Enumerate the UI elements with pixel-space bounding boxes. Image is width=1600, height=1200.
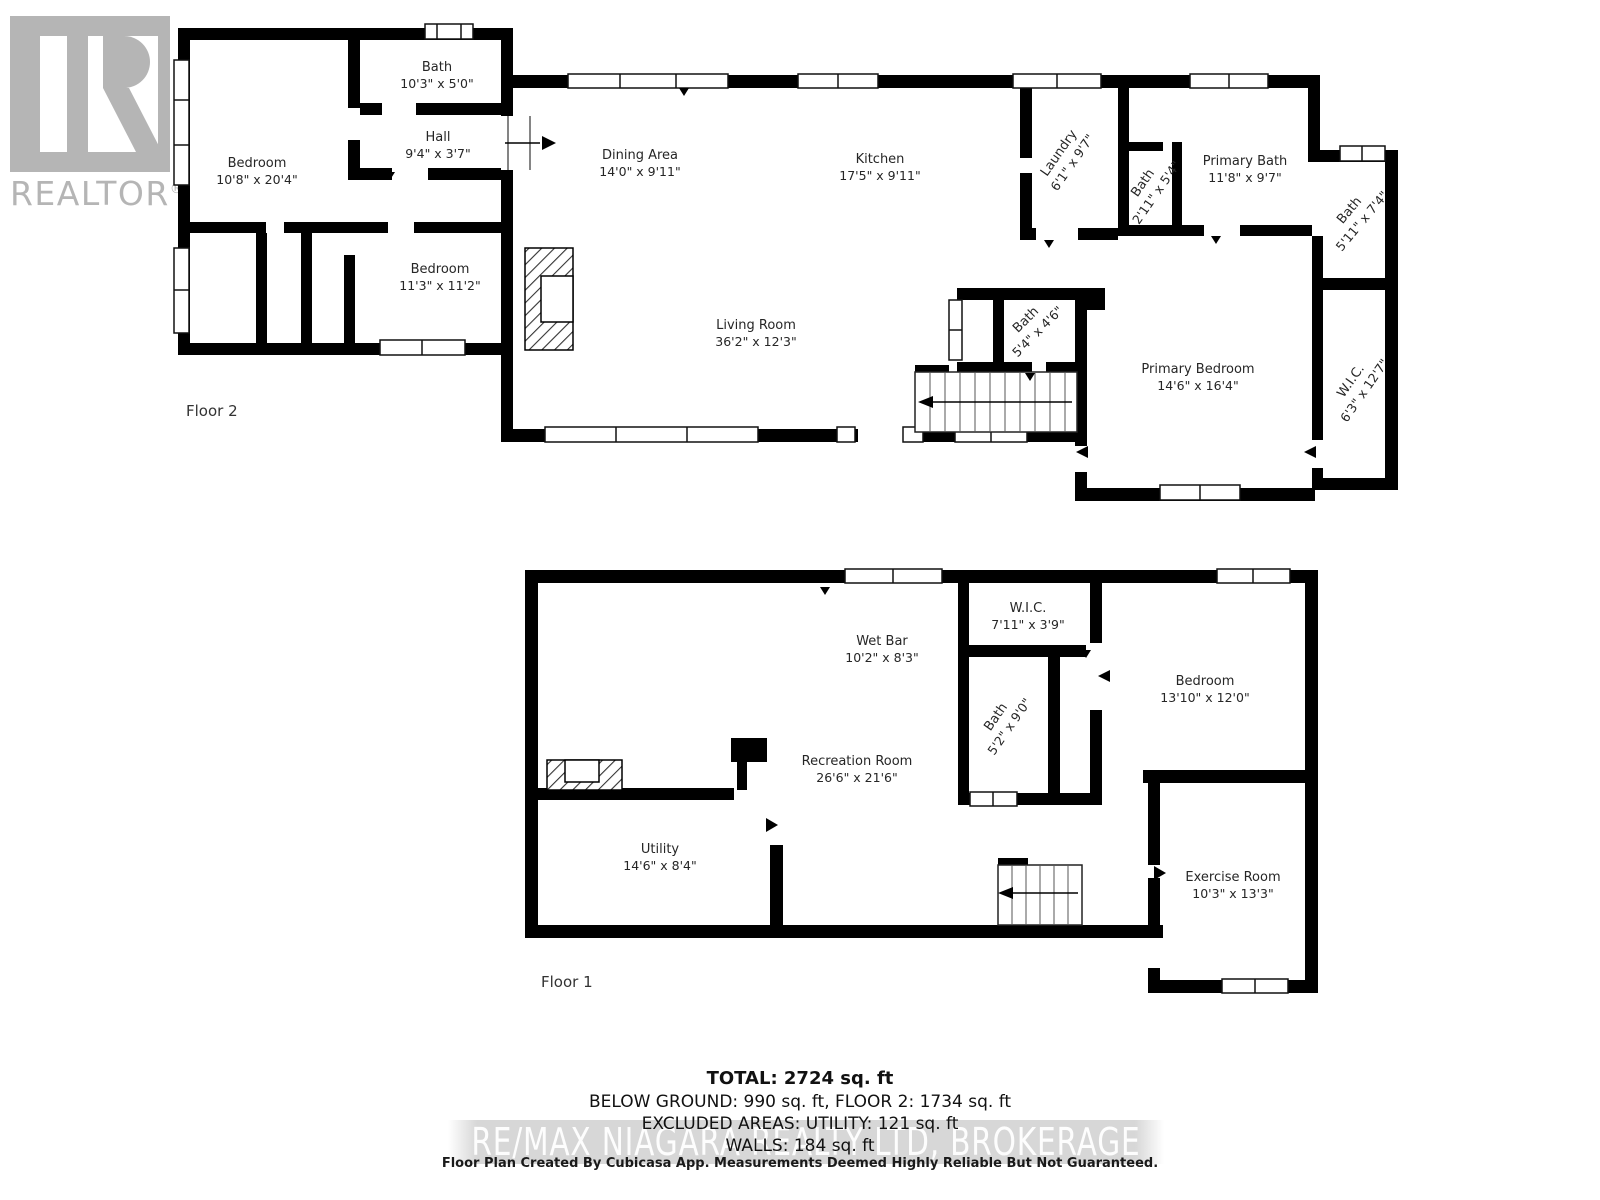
room-label-primary-bedroom-f2: Primary Bedroom14'6" x 16'4" bbox=[1141, 361, 1254, 395]
room-name: Utility bbox=[623, 841, 696, 858]
floor-label-floor-1: Floor 1 bbox=[541, 973, 593, 991]
room-label-bath-small-f2: Bath2'11" x 5'4" bbox=[1115, 148, 1185, 227]
room-dimensions: 26'6" x 21'6" bbox=[802, 770, 913, 787]
room-name: Wet Bar bbox=[845, 633, 918, 650]
room-label-bedroom-1-f2: Bedroom10'8" x 20'4" bbox=[216, 155, 297, 189]
room-label-wic-f1: W.I.C.7'11" x 3'9" bbox=[991, 600, 1064, 634]
room-dimensions: 17'5" x 9'11" bbox=[839, 168, 920, 185]
room-label-living-room-f2: Living Room36'2" x 12'3" bbox=[715, 317, 796, 351]
room-name: Dining Area bbox=[599, 147, 680, 164]
room-name: Primary Bedroom bbox=[1141, 361, 1254, 378]
room-label-recreation-room-f1: Recreation Room26'6" x 21'6" bbox=[802, 753, 913, 787]
room-name: W.I.C. bbox=[991, 600, 1064, 617]
room-label-bath-f1: Bath5'2" x 9'0" bbox=[970, 686, 1035, 759]
room-dimensions: 11'3" x 11'2" bbox=[399, 278, 480, 295]
room-label-bedroom-2-f2: Bedroom11'3" x 11'2" bbox=[399, 261, 480, 295]
labels-layer: Floor 2Bedroom10'8" x 20'4"Bath10'3" x 5… bbox=[0, 0, 1600, 1200]
room-name: Kitchen bbox=[839, 151, 920, 168]
room-name: Bedroom bbox=[399, 261, 480, 278]
room-name: Recreation Room bbox=[802, 753, 913, 770]
room-name: Living Room bbox=[715, 317, 796, 334]
room-label-bedroom-f1: Bedroom13'10" x 12'0" bbox=[1160, 673, 1249, 707]
room-label-bath-top-f2: Bath10'3" x 5'0" bbox=[400, 59, 473, 93]
room-dimensions: 10'2" x 8'3" bbox=[845, 650, 918, 667]
room-dimensions: 10'8" x 20'4" bbox=[216, 172, 297, 189]
room-dimensions: 14'6" x 8'4" bbox=[623, 858, 696, 875]
room-label-primary-bath-f2: Primary Bath11'8" x 9'7" bbox=[1203, 153, 1288, 187]
room-label-kitchen-f2: Kitchen17'5" x 9'11" bbox=[839, 151, 920, 185]
room-label-bath-stairs-f2: Bath5'4" x 4'6" bbox=[997, 291, 1067, 361]
room-label-wic-f2: W.I.C.6'3" x 12'7" bbox=[1323, 346, 1393, 425]
room-dimensions: 13'10" x 12'0" bbox=[1160, 690, 1249, 707]
room-dimensions: 9'4" x 3'7" bbox=[405, 146, 471, 163]
room-name: Exercise Room bbox=[1185, 869, 1280, 886]
room-dimensions: 7'11" x 3'9" bbox=[991, 617, 1064, 634]
room-label-laundry-f2: Laundry6'1" x 9'7" bbox=[1033, 122, 1098, 195]
room-label-dining-area-f2: Dining Area14'0" x 9'11" bbox=[599, 147, 680, 181]
room-name: Bath bbox=[400, 59, 473, 76]
room-name: Bedroom bbox=[1160, 673, 1249, 690]
room-dimensions: 11'8" x 9'7" bbox=[1203, 170, 1288, 187]
room-label-utility-f1: Utility14'6" x 8'4" bbox=[623, 841, 696, 875]
room-dimensions: 10'3" x 13'3" bbox=[1185, 886, 1280, 903]
room-label-bath-right-f2: Bath5'11" x 7'4" bbox=[1319, 177, 1392, 255]
room-label-exercise-room-f1: Exercise Room10'3" x 13'3" bbox=[1185, 869, 1280, 903]
room-label-wet-bar-f1: Wet Bar10'2" x 8'3" bbox=[845, 633, 918, 667]
room-dimensions: 36'2" x 12'3" bbox=[715, 334, 796, 351]
room-name: Bedroom bbox=[216, 155, 297, 172]
room-name: Hall bbox=[405, 129, 471, 146]
floorplan-canvas: REALTOR® bbox=[0, 0, 1600, 1200]
floor-label-floor-2: Floor 2 bbox=[186, 402, 238, 420]
room-dimensions: 14'0" x 9'11" bbox=[599, 164, 680, 181]
room-name: Primary Bath bbox=[1203, 153, 1288, 170]
room-label-hall-f2: Hall9'4" x 3'7" bbox=[405, 129, 471, 163]
room-dimensions: 14'6" x 16'4" bbox=[1141, 378, 1254, 395]
room-dimensions: 10'3" x 5'0" bbox=[400, 76, 473, 93]
